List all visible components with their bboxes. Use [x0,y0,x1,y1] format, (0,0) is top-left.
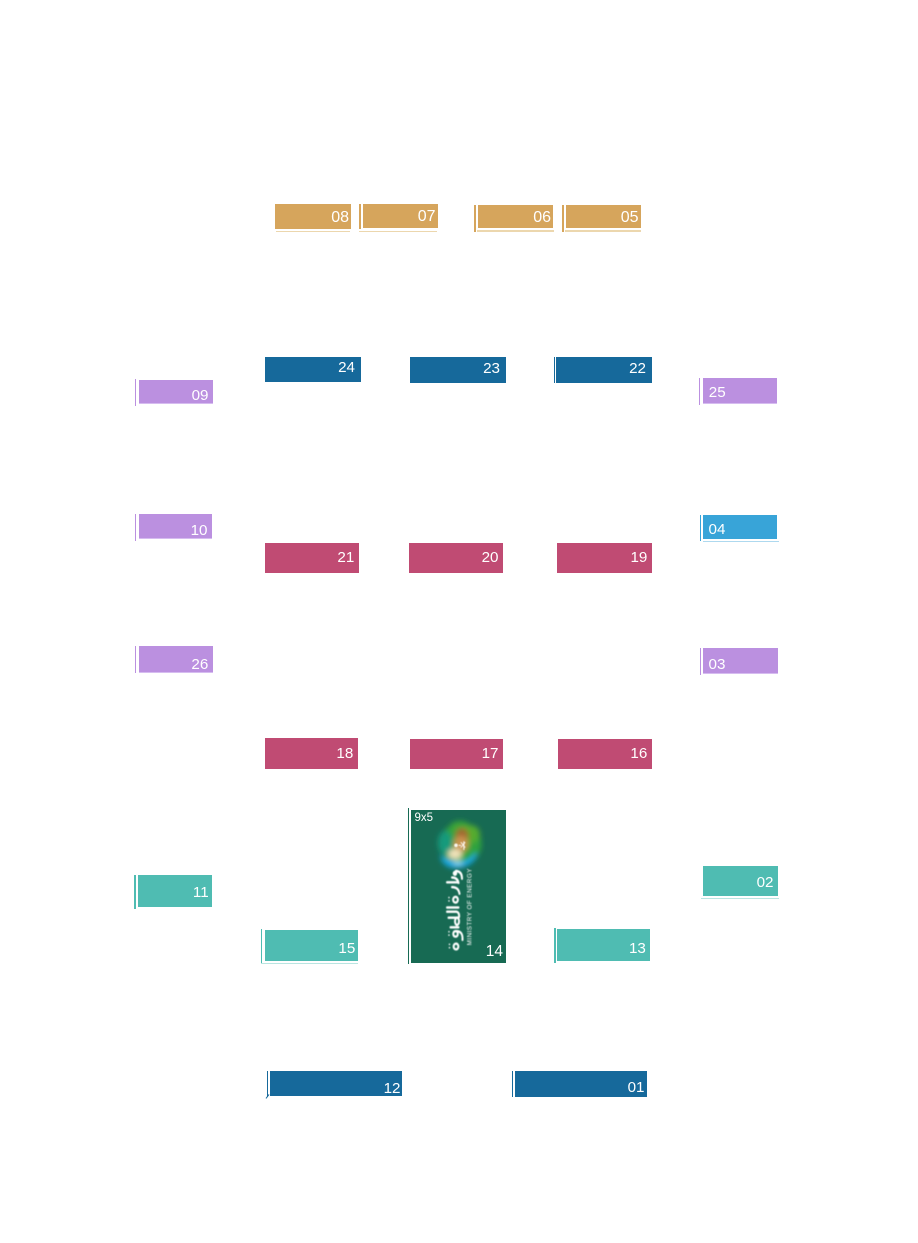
svg-text:MINISTRY OF ENERGY: MINISTRY OF ENERGY [466,867,473,945]
